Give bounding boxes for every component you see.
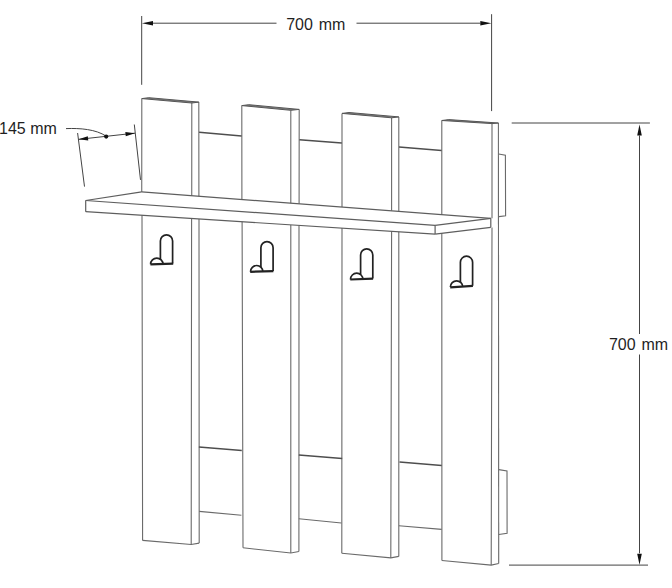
svg-text:700 mm: 700 mm: [609, 336, 668, 353]
svg-text:145 mm: 145 mm: [0, 120, 57, 137]
svg-text:700 mm: 700 mm: [286, 16, 345, 33]
